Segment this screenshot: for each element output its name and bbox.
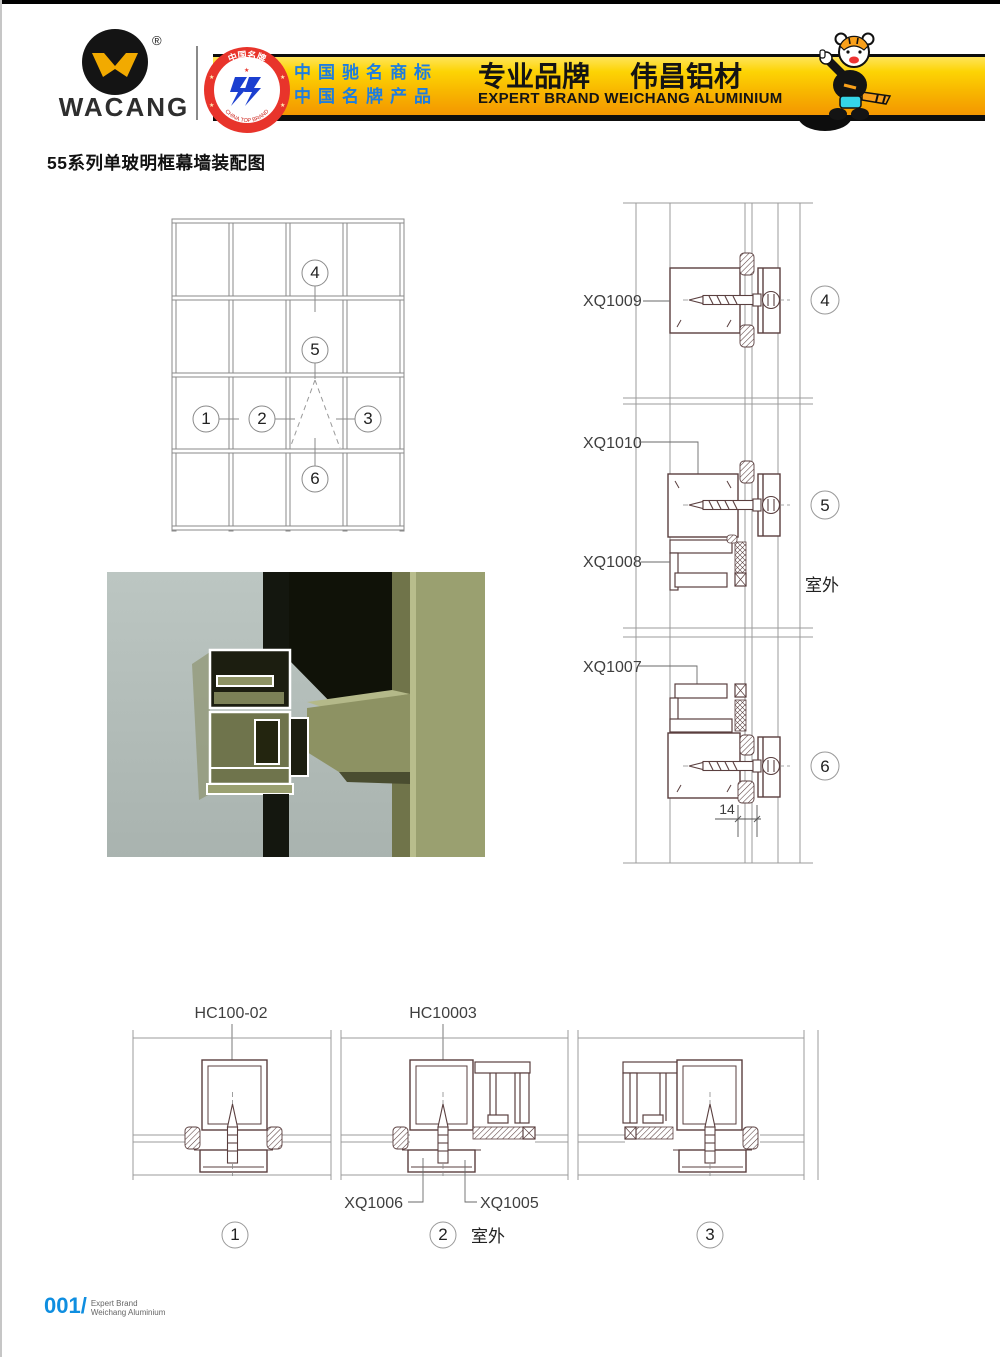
detail-callout-3: 3 (705, 1225, 714, 1244)
footer-brand: Expert Brand Weichang Aluminium (91, 1295, 166, 1317)
elevation-callout-4: 4 (310, 263, 319, 282)
page-footer: 001/ Expert Brand Weichang Aluminium (44, 1295, 165, 1317)
vertical-section-details: XQ1009 4 XQ1010 (575, 195, 865, 875)
page-left-rule (0, 0, 2, 1357)
elevation-callout-1: 1 (201, 409, 210, 428)
quality-badge-icon: 中国名牌 CHINA TOP BRAND ★★★★ ★ (202, 45, 292, 135)
elevation-callout-6: 6 (310, 469, 319, 488)
subframe-xq1008 (670, 535, 746, 590)
detail-4-section: XQ1009 4 (583, 253, 839, 347)
detail-label-xq1010: XQ1010 (583, 435, 642, 452)
catalog-page: ® WACANG 中国名牌 CHINA TOP BRAND ★★★★ ★ 中国驰… (0, 0, 1000, 1357)
page-top-rule (0, 0, 1000, 4)
outdoor-label-bottom: 室外 (471, 1227, 505, 1246)
profile-photo (107, 572, 485, 857)
registered-mark: ® (152, 33, 162, 48)
elevation-callout-2: 2 (257, 409, 266, 428)
outdoor-label-right: 室外 (805, 576, 839, 595)
detail-label-xq1006: XQ1006 (344, 1195, 403, 1212)
subframe-xq1007 (670, 684, 746, 732)
detail-2-section: XQ1006 XQ1005 2 室外 (344, 1060, 539, 1248)
detail-label-hc100-02: HC100-02 (195, 1005, 268, 1022)
footer-brand-line2: Weichang Aluminium (91, 1308, 166, 1317)
vent-sash-right (473, 1062, 535, 1139)
dimension-label: 14 (719, 801, 735, 817)
svg-text:★: ★ (209, 74, 214, 81)
credential-line-1: 中国驰名商标 (294, 61, 438, 85)
footer-page-number: 001/ (44, 1295, 87, 1317)
footer-brand-line1: Expert Brand (91, 1299, 166, 1308)
tiger-mascot-icon (800, 30, 900, 125)
detail-callout-1: 1 (230, 1225, 239, 1244)
wacang-logo-icon: ® (48, 25, 198, 97)
page-title: 55系列单玻明框幕墙装配图 (47, 150, 265, 175)
detail-6-section: XQ1007 (583, 659, 839, 837)
detail-1-section: 1 (185, 1060, 282, 1248)
detail-label-xq1008: XQ1008 (583, 554, 642, 571)
horizontal-section-details: HC100-02 HC10003 (115, 1000, 835, 1255)
detail-callout-2: 2 (438, 1225, 447, 1244)
detail-3-section: 3 (623, 1060, 758, 1248)
header-divider (196, 46, 198, 120)
slogan-cn-right: 伟昌铝材 (630, 61, 742, 92)
detail-callout-6: 6 (820, 757, 829, 776)
logo-wordmark: WACANG (48, 92, 200, 123)
detail-label-hc10003: HC10003 (409, 1005, 477, 1022)
detail-callout-4: 4 (820, 291, 829, 310)
elevation-callout-3: 3 (363, 409, 372, 428)
detail-label-xq1005: XQ1005 (480, 1195, 539, 1212)
detail-label-xq1009: XQ1009 (583, 293, 642, 310)
banner-slogan-en: EXPERT BRAND WEICHANG ALUMINIUM (478, 90, 783, 107)
svg-text:★: ★ (280, 74, 285, 81)
detail-label-xq1007: XQ1007 (583, 659, 642, 676)
detail-5-section: XQ1010 (583, 435, 839, 595)
credential-line-2: 中国名牌产品 (294, 85, 438, 109)
svg-text:★: ★ (244, 67, 249, 74)
vent-sash-left (623, 1062, 678, 1139)
detail-callout-5: 5 (820, 496, 829, 515)
slogan-cn-left: 专业品牌 (478, 61, 590, 92)
svg-text:★: ★ (209, 102, 214, 109)
elevation-diagram: 1 2 3 4 5 6 (168, 215, 408, 535)
banner-slogan-cn: 专业品牌伟昌铝材 (478, 55, 742, 95)
elevation-callout-5: 5 (310, 340, 319, 359)
vent-opening-symbol (290, 380, 340, 448)
svg-text:★: ★ (280, 102, 285, 109)
